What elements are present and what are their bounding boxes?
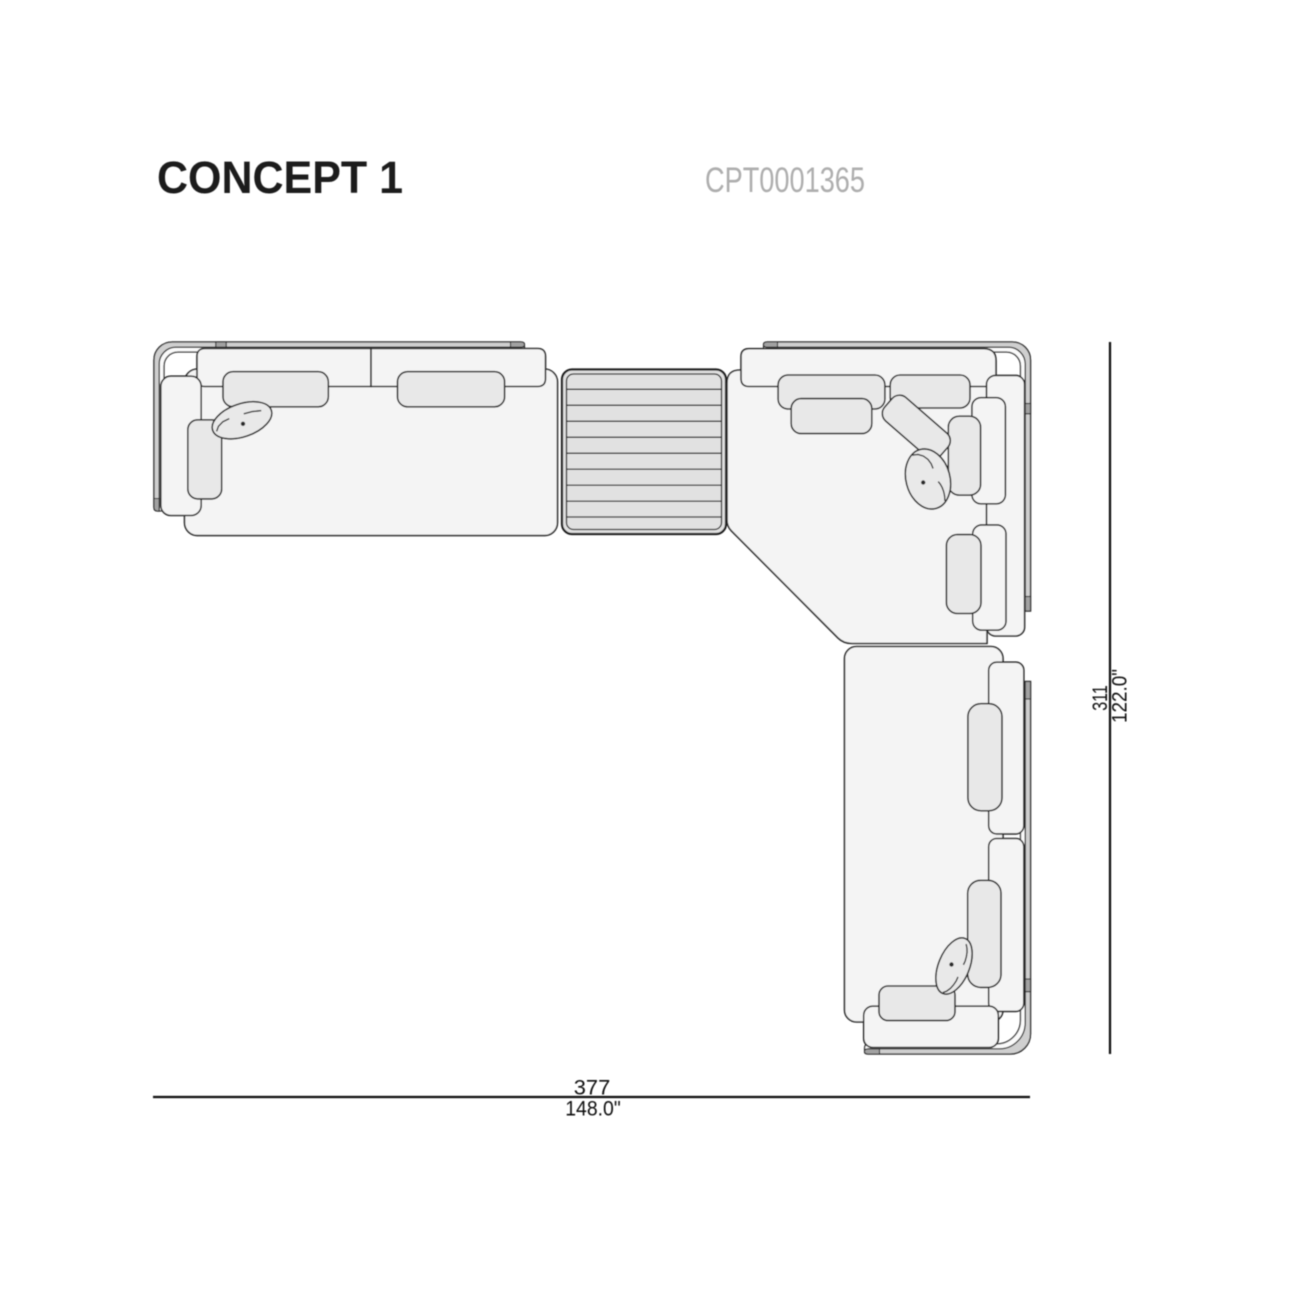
svg-text:122.0": 122.0" xyxy=(1108,669,1132,723)
svg-text:CONCEPT 1: CONCEPT 1 xyxy=(157,152,403,203)
svg-text:CPT0001365: CPT0001365 xyxy=(705,161,865,200)
svg-text:148.0": 148.0" xyxy=(565,1097,621,1121)
